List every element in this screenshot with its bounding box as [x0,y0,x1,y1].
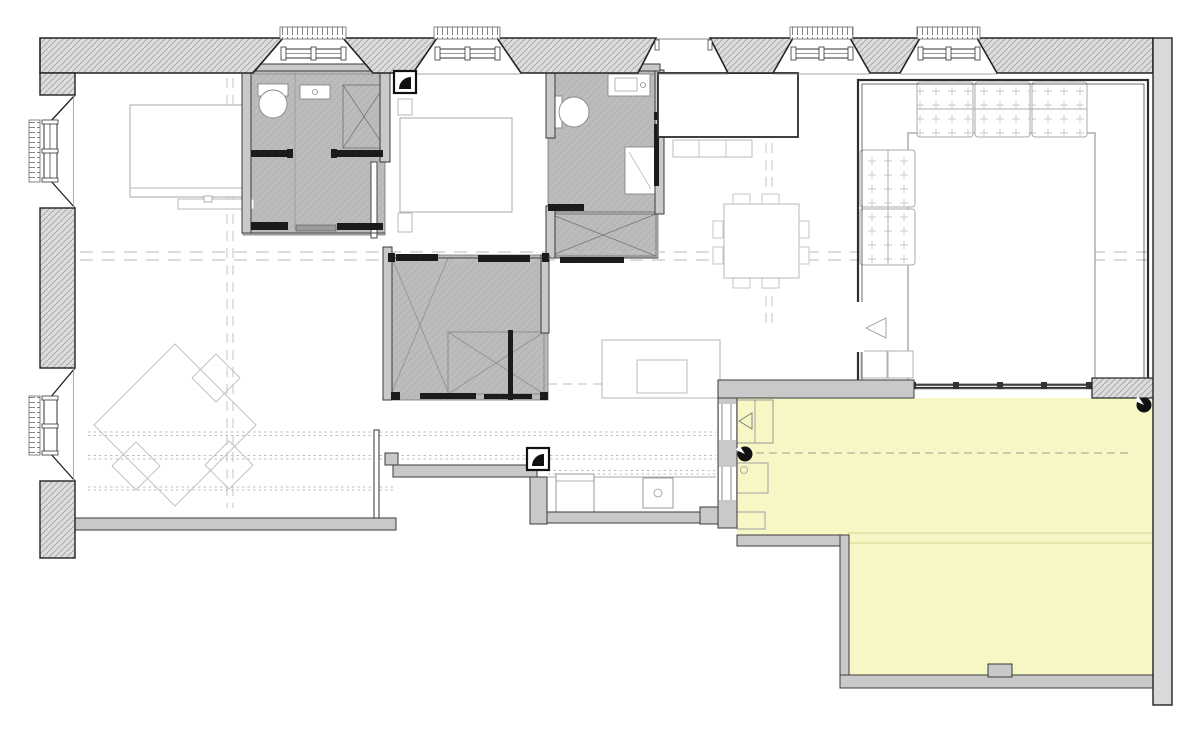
window-mullion [946,47,951,60]
sliding-door-panel [548,204,584,211]
sliding-door-panel [251,150,289,157]
partition [380,70,390,162]
floor-plan-canvas [0,0,1200,739]
mullion [1041,382,1047,389]
door-handle [331,149,337,158]
window-mullion [42,120,58,124]
dining-chair [799,247,809,264]
window-mullion [42,178,58,182]
washbasin [300,85,330,99]
sofa-cushion [860,150,915,207]
window-sill-ticks [29,120,40,182]
exterior-wall-top [40,38,283,73]
bath-top-band [243,64,385,71]
kitchen-island [602,340,720,398]
direction-arrow [866,318,886,338]
bench-tick [204,196,212,202]
toilet-bowl [259,90,287,118]
window-mullion [42,149,58,153]
window-mullion [495,47,500,60]
dining-chair [733,194,750,204]
sliding-door-panel [251,222,288,230]
yellow-west-door-gap [719,404,736,440]
bed-guest [400,118,512,212]
washer [556,474,594,512]
step [861,351,887,378]
bathtub [625,147,656,194]
exterior-wall-left [40,73,75,95]
yellow-southwest-wall [737,535,849,546]
window-sill-ticks [434,27,500,39]
window-sill-ticks [280,27,346,39]
partition [546,206,555,258]
sofa-cushion [1032,82,1087,137]
window-mullion [42,451,58,455]
wall-stub [700,507,719,524]
window-mullion [281,47,286,60]
exterior-wall-top [497,38,656,73]
window-mullion [341,47,346,60]
window-mullion [42,424,58,428]
wall-stub [530,477,547,524]
sofa-cushion [975,82,1030,137]
wall-stub [385,453,398,465]
exterior-wall-top [850,38,920,73]
window-sill-ticks [917,27,980,39]
sliding-door-panel [560,257,624,263]
sofa-cushion [860,209,915,265]
step [888,351,913,378]
door-threshold-tab [988,664,1012,677]
partition [546,70,555,138]
dining-chair [713,247,723,264]
window-sill-ticks [29,396,40,455]
window-reveal [50,453,75,481]
kitchen-cabinet-row [673,140,752,157]
window-mullion [435,47,440,60]
kitchen-counter [658,73,798,137]
sliding-door-panel [484,394,532,399]
window-mullion [848,47,853,60]
window-reveal [50,368,75,398]
exterior-wall-left [40,208,75,368]
suite-door-gap [853,302,864,352]
window-reveal [50,95,75,122]
dining-chair [762,278,779,288]
window-mullion [311,47,316,60]
washbasin [608,74,650,96]
partition [242,70,251,233]
hatched-wall-block [1092,378,1154,398]
opening-jamb [655,40,659,50]
window-mullion [42,396,58,400]
yellow-room-lower [848,535,1153,675]
door-handle [287,149,293,158]
door-jamb [388,253,395,262]
toilet-bowl [559,97,589,127]
dining-chair [799,221,809,238]
mullion [1086,382,1092,389]
sliding-door-panel [508,330,513,400]
exterior-wall-left [40,481,75,558]
sofa-cushion [917,82,973,137]
chair-diamond [192,354,240,402]
window-mullion [465,47,470,60]
nightstand [398,99,412,115]
window-mullion [819,47,824,60]
door-jamb [391,392,400,400]
dining-chair [713,221,723,238]
sliding-door-panel [420,393,476,399]
corridor-yellow-wall [718,380,914,398]
laundry-south-wall [545,512,719,523]
bed-master [130,105,243,197]
dressing-floor [391,255,548,400]
yellow-west-door-gap [719,467,736,500]
floor-plan-drawing [0,0,1200,739]
mullion [953,382,959,389]
dining-chair [733,278,750,288]
living-south-wall [70,518,396,530]
dining-table [724,204,799,278]
nightstand [398,213,412,232]
entry-door-line [374,430,379,518]
window-reveal [50,180,75,208]
exterior-wall-top [977,38,1153,73]
sliding-door-panel-light [296,225,336,231]
mullion [997,382,1003,389]
chair-diamond [112,442,160,490]
exterior-wall-top [710,38,793,73]
door-jamb [542,253,549,262]
partition [541,255,549,333]
dining-chair [762,194,779,204]
window-sill-ticks [790,27,853,39]
window-mullion [918,47,923,60]
sliding-door-panel [396,254,438,261]
window-mullion [791,47,796,60]
door-jamb [540,392,548,400]
sliding-door-panel [337,223,383,230]
plan-elements [29,27,1172,705]
laundry-sink [643,478,673,508]
entry-wall [393,465,537,477]
exterior-wall-right [1153,38,1172,705]
partition [383,247,392,400]
sliding-door-panel [478,255,530,262]
window-mullion [975,47,980,60]
table-diamond [94,344,256,506]
platform-bed [908,133,1095,385]
yellow-room-upper [737,398,1153,535]
sliding-door-panel [337,150,383,157]
yellow-west-lower-wall [840,535,849,675]
opening-jamb [708,40,712,50]
chair-diamond [205,441,253,489]
